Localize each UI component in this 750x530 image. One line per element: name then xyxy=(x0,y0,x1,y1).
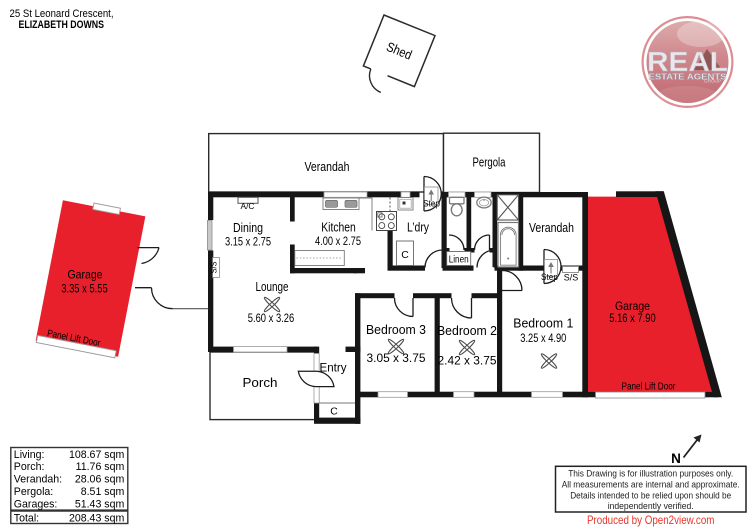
svg-text:Bedroom 2: Bedroom 2 xyxy=(437,323,497,338)
svg-text:S/S: S/S xyxy=(564,273,579,283)
svg-text:3.15 x 2.75: 3.15 x 2.75 xyxy=(225,235,271,249)
svg-text:2.42 x 3.75: 2.42 x 3.75 xyxy=(438,354,497,368)
svg-text:Living:: Living: xyxy=(14,449,45,461)
svg-text:C: C xyxy=(401,250,409,261)
svg-text:108.67 sqm: 108.67 sqm xyxy=(69,449,125,461)
svg-text:GROUP: GROUP xyxy=(704,78,721,83)
svg-text:Verandah:: Verandah: xyxy=(14,474,62,486)
svg-text:5.16 x 7.90: 5.16 x 7.90 xyxy=(609,311,656,325)
svg-text:8.51 sqm: 8.51 sqm xyxy=(81,486,125,498)
svg-text:11.76 sqm: 11.76 sqm xyxy=(76,461,125,473)
svg-text:S/S: S/S xyxy=(209,261,218,273)
svg-text:Pergola:: Pergola: xyxy=(14,486,53,498)
svg-text:Porch:: Porch: xyxy=(14,461,45,473)
svg-text:This Drawing is for illustrati: This Drawing is for illustration purpose… xyxy=(568,469,733,479)
svg-text:Bedroom 1: Bedroom 1 xyxy=(513,316,573,331)
svg-text:L’dry: L’dry xyxy=(407,220,429,235)
svg-text:Step: Step xyxy=(541,272,558,283)
svg-text:Kitchen: Kitchen xyxy=(321,220,356,235)
svg-text:3.35 x 5.55: 3.35 x 5.55 xyxy=(61,282,108,296)
svg-text:Produced by Open2view.com: Produced by Open2view.com xyxy=(587,514,715,527)
svg-text:independently verified.: independently verified. xyxy=(608,501,694,511)
svg-text:Linen: Linen xyxy=(449,255,469,266)
svg-text:All measurements are internal: All measurements are internal and approx… xyxy=(562,480,740,490)
svg-text:Porch: Porch xyxy=(243,375,278,390)
svg-text:Step: Step xyxy=(423,199,440,210)
svg-text:ELIZABETH DOWNS: ELIZABETH DOWNS xyxy=(19,19,105,31)
svg-text:A/C: A/C xyxy=(241,201,255,211)
svg-text:Lounge: Lounge xyxy=(256,279,289,294)
svg-text:N: N xyxy=(671,451,681,466)
svg-text:Total:: Total: xyxy=(14,512,39,524)
svg-text:4.00 x 2.75: 4.00 x 2.75 xyxy=(315,234,361,248)
svg-text:3.25 x 4.90: 3.25 x 4.90 xyxy=(520,331,566,345)
svg-text:Details intended to be relied: Details intended to be relied upon shoul… xyxy=(570,490,731,500)
svg-text:208.43 sqm: 208.43 sqm xyxy=(69,512,125,524)
svg-text:C: C xyxy=(330,406,338,417)
svg-text:Dining: Dining xyxy=(233,220,263,235)
svg-text:3.05 x 3.75: 3.05 x 3.75 xyxy=(367,351,426,365)
svg-text:51.43 sqm: 51.43 sqm xyxy=(75,498,125,510)
svg-text:Verandah: Verandah xyxy=(305,159,350,174)
svg-text:5.60 x 3.26: 5.60 x 3.26 xyxy=(248,311,295,325)
svg-text:Garage: Garage xyxy=(68,268,103,282)
svg-text:Panel Lift Door: Panel Lift Door xyxy=(622,382,677,393)
svg-text:Garages:: Garages: xyxy=(14,498,58,510)
svg-text:Verandah: Verandah xyxy=(529,220,574,235)
svg-text:Bedroom 3: Bedroom 3 xyxy=(366,322,426,337)
svg-text:Pergola: Pergola xyxy=(473,155,507,170)
svg-text:28.06 sqm: 28.06 sqm xyxy=(75,474,125,486)
